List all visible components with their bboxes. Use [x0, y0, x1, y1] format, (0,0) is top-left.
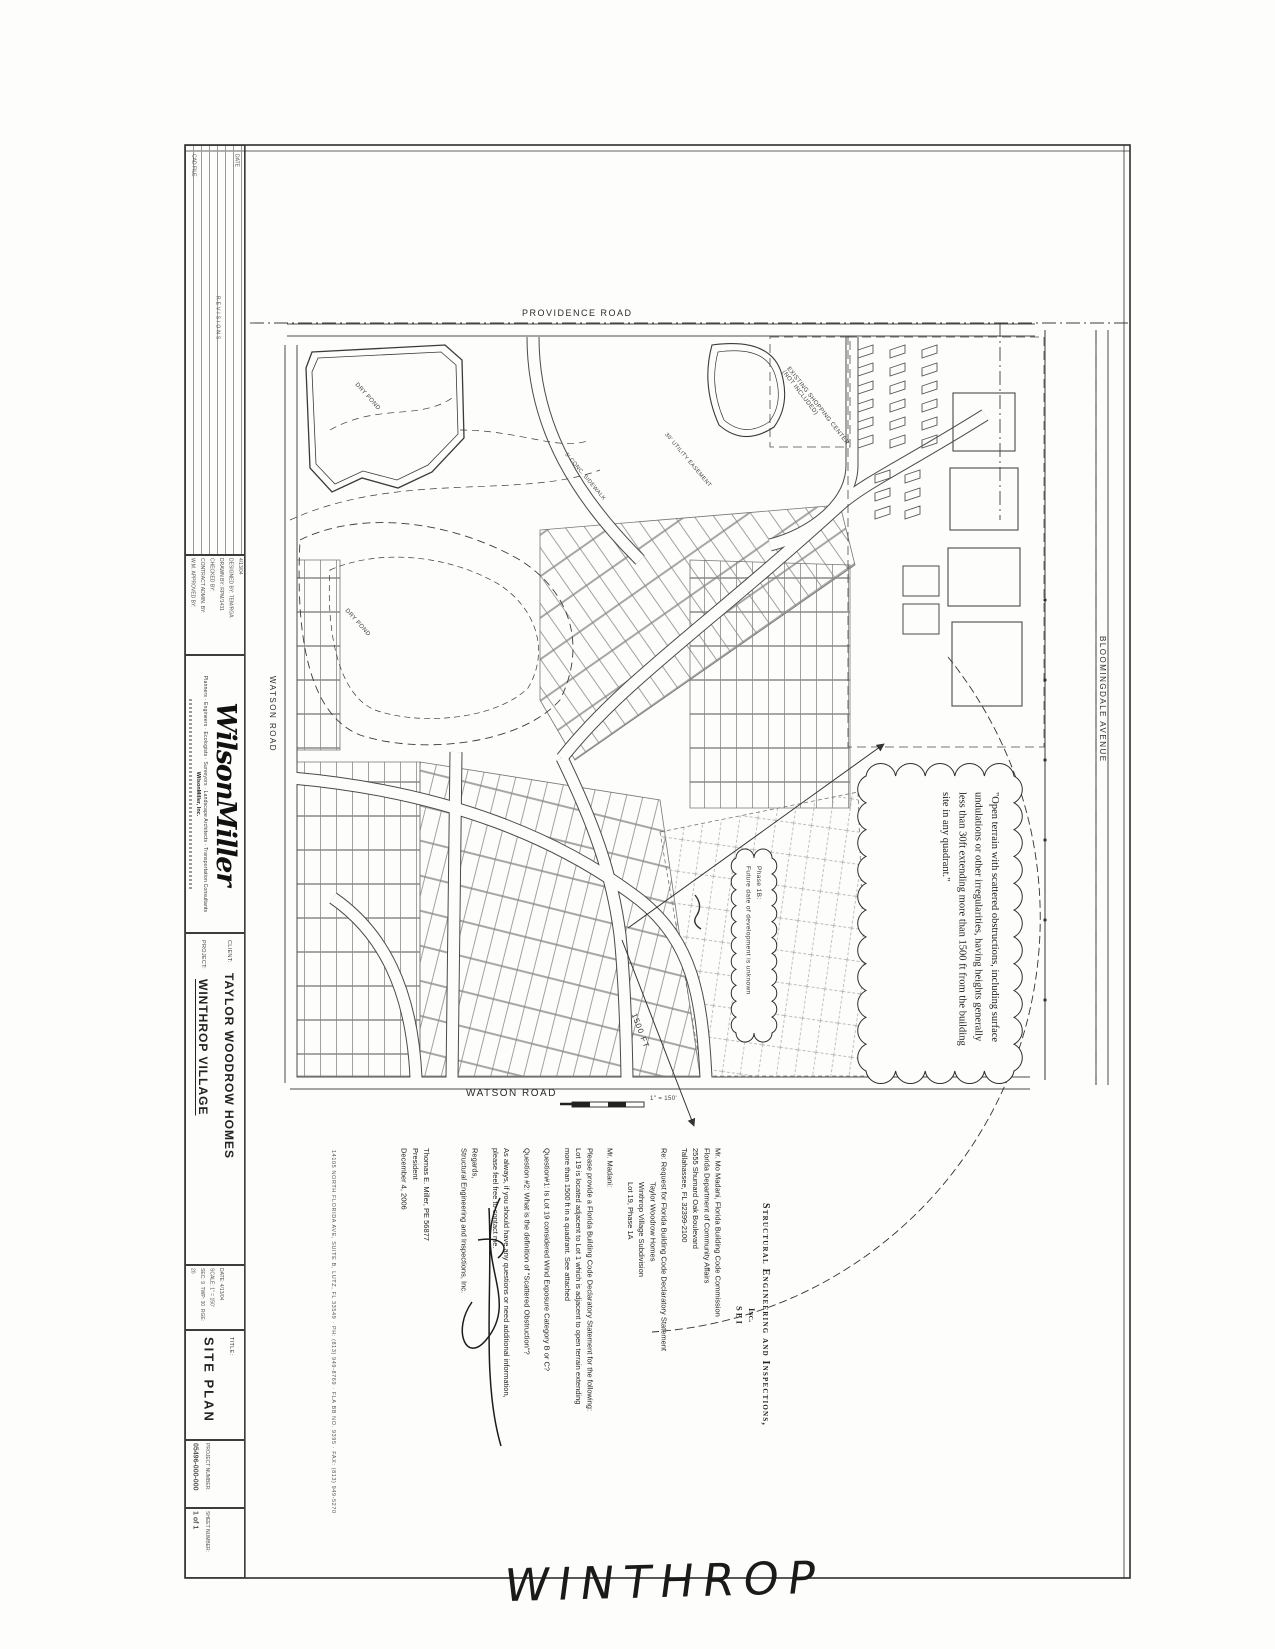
title-label: TITLE: [228, 1337, 234, 1355]
radius-1500ft-label: 1500 FT [630, 1012, 652, 1050]
revisions-table: CAD FILE REVISIONS DATE [185, 145, 245, 555]
declaratory-statement-letter: Structural Engineering and Inspections, … [427, 1148, 773, 1482]
wilsonmiller-logo: WilsonMiller [210, 659, 241, 929]
logo-box: WilsonMiller Planners · Engineers · Ecol… [185, 655, 245, 933]
scale-bar-label: 1" = 150' [650, 1096, 677, 1102]
designed-by: DESIGNED BY: TEM/RGA [225, 558, 235, 654]
utility-easement-label: 30' UTILITY EASEMENT [663, 432, 712, 489]
sheet-number-label: SHEET NUMBER: [201, 1511, 211, 1577]
providence-road-label: PROVIDENCE ROAD [522, 308, 633, 318]
client-value: TAYLOR WOODROW HOMES [222, 973, 236, 1159]
sec-twp-rge: SEC: 9 TWP: 30 RGE: 20 [187, 1268, 206, 1328]
personnel-box: 4/13/04 DESIGNED BY: TEM/RGA DRAWN BY: R… [185, 555, 245, 655]
dry-pond-2-label: DRY POND [344, 608, 372, 638]
letter-re-line: Taylor Woodrow Homes [647, 1148, 658, 1482]
project-number-box: PROJECT NUMBER: 05496-000-000 [185, 1440, 245, 1508]
letter-recipient-line: Florida Department of Community Affairs [701, 1148, 712, 1482]
letter-closing-line: As always, if you should have any questi… [501, 1148, 512, 1482]
checked-by: CHECKED BY: [206, 558, 216, 654]
letter-footer-address: 14105 NORTH FLORIDA AVE, SUITE B, LUTZ, … [330, 1150, 336, 1510]
sheet-number-box: SHEET NUMBER: 1 of 1 [185, 1508, 245, 1578]
wm-approved-by: W.M. APPROVED BY: [187, 558, 197, 654]
logo-address-line [189, 699, 192, 889]
project-number: 05496-000-000 [188, 1443, 201, 1507]
shopping-center-label: EXISTING SHOPPING CENTER (NOT INCLUDED) [781, 366, 850, 450]
lot-bands [292, 505, 868, 1076]
sheet-title: SITE PLAN [202, 1337, 217, 1423]
letter-question-2: Question #2: What is the definition of "… [521, 1148, 532, 1482]
sheet-date: DATE: 4/13/04 [216, 1268, 226, 1328]
letter-company-name: Structural Engineering and Inspections, [758, 1148, 773, 1482]
handwritten-winthrop: WINTHROP [501, 1551, 828, 1612]
sheet-number: 1 of 1 [188, 1511, 201, 1577]
project-value: WINTHROP VILLAGE [196, 979, 210, 1115]
sheet-scale: SCALE: 1" = 150' [206, 1268, 216, 1328]
letter-re-line: Re: Request for Florida Building Code De… [658, 1148, 669, 1482]
watson-road-left-label: WATSON ROAD [268, 676, 277, 752]
letter-regards: Regards, [469, 1148, 480, 1482]
letter-body-line: Please provide a Florida Building Code D… [584, 1148, 595, 1482]
client-label: CLIENT: [226, 940, 232, 963]
watson-road-bottom-label: WATSON ROAD [466, 1088, 557, 1099]
title-box: TITLE: SITE PLAN [185, 1330, 245, 1440]
project-label: PROJECT: [200, 940, 206, 969]
project-number-label: PROJECT NUMBER: [201, 1443, 211, 1507]
letter-recipient-line: Tallahassee, FL 32399-2100 [679, 1148, 690, 1482]
letter-signer-title: President [410, 1148, 421, 1482]
letter-recipient-line: 2555 Shumard Oak Boulevard [690, 1148, 701, 1482]
parking-stalls [858, 345, 937, 519]
exposure-quote-text: "Open terrain with scattered obstruction… [880, 792, 1002, 1057]
cad-file-label: CAD FILE [188, 154, 198, 177]
sidewalk-label: 5' CONC. SIDEWALK [563, 452, 606, 502]
letter-date: December 4, 2006 [398, 1148, 409, 1482]
letter-re-line: Lot 19, Phase 1A [625, 1148, 636, 1482]
logo-firm: WilsonMiller, Inc. [195, 659, 201, 929]
letter-recipient-line: Mr. Mo Madani, Florida Building Code Com… [712, 1148, 723, 1482]
date-col-label: DATE [231, 154, 241, 167]
contract-admin-by: CONTRACT ADMIN. BY: [197, 558, 207, 654]
logo-tagline: Planners · Engineers · Ecologists · Surv… [202, 659, 208, 929]
letter-closing-line: please feel free to contact me. [490, 1148, 501, 1482]
letter-salutation: Mr. Madani: [604, 1148, 615, 1482]
letter-company-signoff: Structural Engineering and Inspections, … [458, 1148, 469, 1482]
letter-company-inc: Inc. [745, 1148, 758, 1482]
letter-signer-name: Thomas E. Miller, PE 56877 [421, 1148, 432, 1482]
client-project-box: CLIENT: TAYLOR WOODROW HOMES PROJECT: WI… [185, 933, 245, 1265]
letter-question-1: Question#1: Is Lot 19 considered Wind Ex… [541, 1148, 552, 1482]
revisions-header: REVISIONS [212, 296, 222, 341]
rev-date: 4/13/04 [235, 558, 245, 654]
scanned-site-plan-page: CAD FILE REVISIONS DATE 4/13/04 DESIGNED… [0, 0, 1275, 1649]
dry-pond-1-label: DRY POND [354, 382, 382, 412]
ponds [290, 344, 785, 745]
letter-body-line: Lot 19 is located adjacent to Lot 1 whic… [573, 1148, 584, 1482]
letter-body-line: more than 1500 ft in a quadrant. See att… [562, 1148, 573, 1482]
phase-1b-text: Phase 1B: Future date of development is … [742, 866, 763, 1026]
bloomingdale-avenue-label: BLOOMINGDALE AVENUE [1098, 636, 1107, 763]
drawn-by: DRAWN BY: RPM/1431 [216, 558, 226, 654]
date-scale-box: DATE: 4/13/04 SCALE: 1" = 150' SEC: 9 TW… [185, 1265, 245, 1330]
scale-bar [560, 1102, 644, 1107]
letter-re-line: Winthrop Village Subdivision [636, 1148, 647, 1482]
letter-company-sei: S E I [733, 1148, 746, 1482]
